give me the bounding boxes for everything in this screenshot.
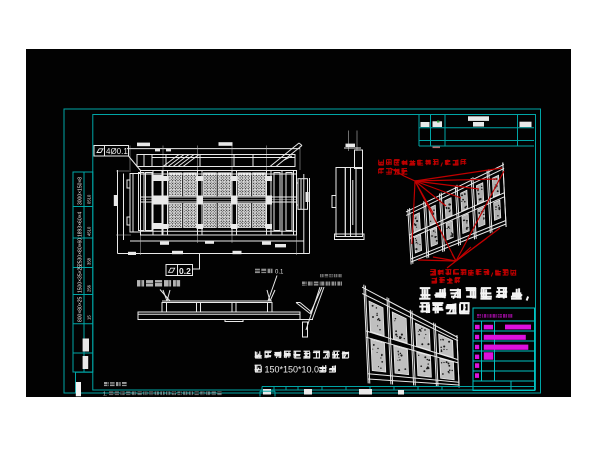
svg-text:0.2: 0.2 <box>179 266 191 276</box>
svg-text:15: 15 <box>87 315 92 320</box>
svg-text:800×80×25: 800×80×25 <box>78 296 84 322</box>
svg-text:0510: 0510 <box>87 194 92 204</box>
svg-text:4Ø0.1: 4Ø0.1 <box>106 147 128 156</box>
svg-text:150*150*10.0: 150*150*10.0 <box>265 365 320 375</box>
svg-text:0.1: 0.1 <box>275 270 284 276</box>
svg-text:1.: 1. <box>103 392 108 398</box>
svg-text:3000×150×8: 3000×150×8 <box>78 177 84 205</box>
svg-text:1893×60×4: 1893×60×4 <box>78 211 84 237</box>
svg-text:358: 358 <box>87 257 92 265</box>
svg-text:256: 256 <box>87 284 92 292</box>
svg-text:2530×80×60: 2530×80×60 <box>78 238 84 266</box>
svg-text:4510: 4510 <box>87 226 92 236</box>
svg-text:1500×35×25: 1500×35×25 <box>78 265 84 293</box>
